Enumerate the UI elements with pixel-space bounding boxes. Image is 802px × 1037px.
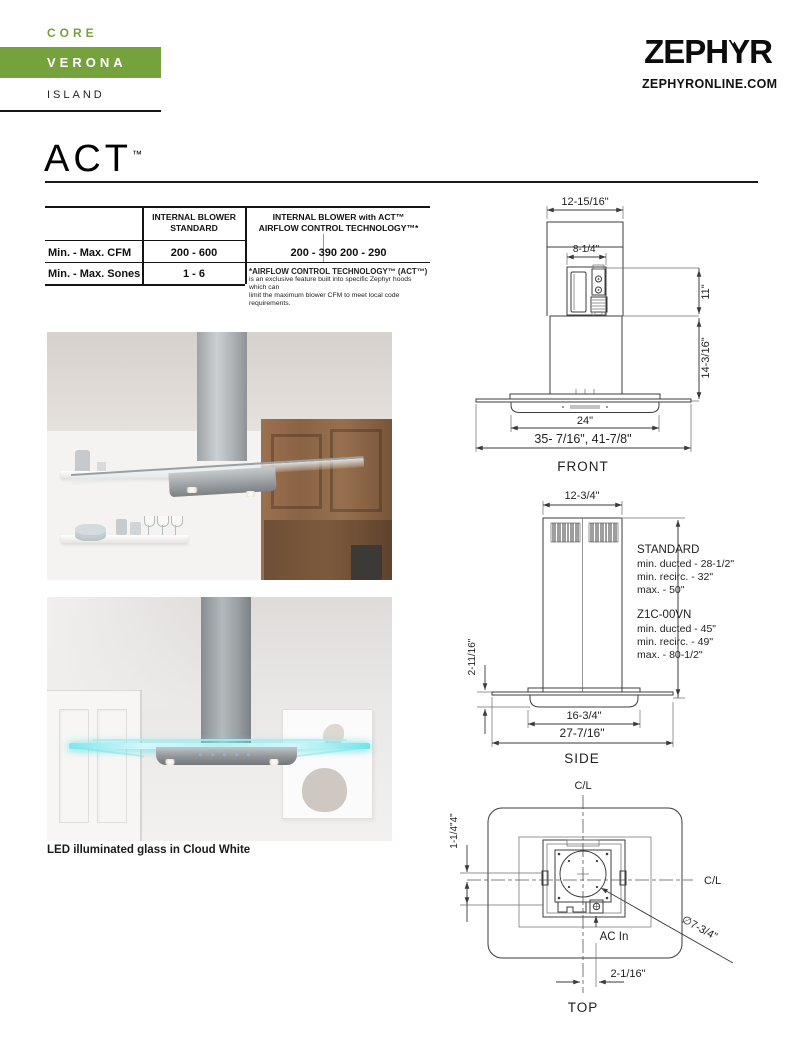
shelf-canister bbox=[75, 450, 91, 471]
spec-sheet-page: CORE VERONA ISLAND ZEPHYR ZEPHYRONLINE.C… bbox=[0, 0, 802, 1037]
artwork-shape bbox=[302, 768, 347, 812]
spec-table: INTERNAL BLOWER STANDARD INTERNAL BLOWER… bbox=[45, 206, 430, 300]
alt-title: Z1C-00VN bbox=[637, 609, 691, 621]
alt-max: max. - 80-1/2" bbox=[637, 649, 703, 661]
product-photo-led bbox=[47, 597, 392, 841]
plate-stack bbox=[75, 524, 106, 535]
hood-chimney bbox=[197, 332, 247, 461]
table-bottom-border bbox=[45, 284, 245, 286]
table-row-rule bbox=[45, 262, 430, 263]
series-label: CORE bbox=[47, 26, 98, 40]
table-top-border bbox=[45, 206, 430, 208]
standard-title: STANDARD bbox=[637, 544, 699, 556]
mounting-assembly-top bbox=[542, 840, 626, 917]
side-dim-overall-depth: 27-7/16" bbox=[560, 726, 605, 740]
row-cfm-label: Min. - Max. CFM bbox=[48, 247, 131, 259]
front-dim-lower-height: 14-3/16" bbox=[700, 337, 712, 378]
vent-louvers bbox=[551, 523, 618, 542]
top-centerline-label-h: C/L bbox=[704, 875, 721, 887]
wall-shelf bbox=[61, 535, 189, 542]
top-ac-in-label: AC In bbox=[600, 931, 629, 943]
product-type-label: ISLAND bbox=[47, 89, 105, 101]
hood-chimney bbox=[201, 597, 251, 745]
drawing-top-view: C/L C/L AC In bbox=[440, 775, 802, 1037]
top-dim-ac-offset: 2-1/16" bbox=[610, 968, 645, 980]
mounting-height-standard: STANDARD min. ducted - 28-1/2" min. reci… bbox=[637, 544, 734, 596]
zephyr-logo: ZEPHYR bbox=[642, 34, 774, 70]
standard-recirc: min. recirc. - 32" bbox=[637, 571, 713, 583]
top-view-label: TOP bbox=[568, 1000, 599, 1015]
hood-light bbox=[164, 759, 176, 765]
glass-back-edge bbox=[92, 739, 347, 741]
wine-glass bbox=[171, 516, 183, 527]
appliance bbox=[351, 545, 382, 580]
glass-stem bbox=[148, 525, 149, 535]
shelf-cup bbox=[97, 462, 106, 471]
junction-bracket bbox=[558, 902, 586, 912]
glass-outline-top bbox=[488, 808, 682, 958]
brand-website: ZEPHYRONLINE.COM bbox=[642, 77, 774, 91]
col-header-standard: INTERNAL BLOWER STANDARD bbox=[143, 212, 245, 234]
header-underline bbox=[0, 110, 161, 112]
page-title: ACT™ bbox=[44, 138, 146, 181]
glass-stem bbox=[162, 525, 163, 535]
internal-blower-detail bbox=[567, 265, 607, 315]
row-cfm-standard: 200 - 600 bbox=[143, 247, 245, 259]
drawing-side-view: STANDARD min. ducted - 28-1/2" min. reci… bbox=[445, 485, 800, 777]
side-dim-body-depth: 16-3/4" bbox=[566, 710, 601, 722]
cabinet-door bbox=[330, 429, 383, 512]
top-dim-duct-diameter: ∅7-3/4" bbox=[680, 914, 720, 943]
front-dim-chimney-width: 12-15/16" bbox=[561, 196, 608, 208]
standard-ducted: min. ducted - 28-1/2" bbox=[637, 558, 734, 570]
door-panel bbox=[59, 709, 89, 823]
table-footnote: *AIRFLOW CONTROL TECHNOLOGY™ (ACT™) is a… bbox=[249, 267, 430, 308]
top-centerline-label-v: C/L bbox=[574, 780, 591, 792]
glass-canopy-front bbox=[476, 389, 691, 413]
glass-stem bbox=[175, 525, 176, 535]
wine-glass bbox=[157, 516, 169, 527]
front-dim-blower-width: 8-1/4" bbox=[573, 244, 600, 255]
door-panel bbox=[97, 709, 127, 823]
model-banner: VERONA bbox=[0, 47, 161, 78]
front-dim-body-width: 24" bbox=[577, 415, 593, 427]
canister bbox=[116, 519, 127, 535]
front-dim-overall-width: 35- 7/16", 41-7/8" bbox=[534, 432, 631, 446]
row-sones-standard: 1 - 6 bbox=[143, 268, 245, 280]
trademark: ™ bbox=[132, 149, 146, 160]
front-dim-upper-height: 11" bbox=[700, 284, 712, 299]
row-cfm-act: 200 - 390 200 - 290 bbox=[247, 247, 430, 259]
product-photo-kitchen bbox=[47, 332, 392, 580]
front-view-label: FRONT bbox=[557, 459, 609, 474]
canister bbox=[130, 522, 141, 536]
hood-upper-body bbox=[550, 316, 622, 394]
title-rule bbox=[45, 181, 758, 183]
side-dim-glass-height: 2-11/16" bbox=[467, 638, 478, 675]
standard-max: max. - 50" bbox=[637, 584, 685, 596]
side-dim-chimney-depth: 12-3/4" bbox=[564, 490, 599, 502]
control-panel bbox=[199, 753, 251, 756]
drawing-front-view: 12-15/16" 8-1/4" 11" 14-3/16" 24" 35- 7/… bbox=[445, 195, 800, 480]
col-header-act: INTERNAL BLOWER with ACT™ AIRFLOW CONTRO… bbox=[247, 212, 430, 234]
alt-recirc: min. recirc. - 49" bbox=[637, 636, 713, 648]
logo-notch bbox=[728, 35, 738, 44]
hood-light bbox=[185, 487, 199, 493]
mounting-height-z1c00vn: Z1C-00VN min. ducted - 45" min. recirc. … bbox=[637, 609, 716, 661]
table-header-rule bbox=[45, 240, 245, 241]
alt-ducted: min. ducted - 45" bbox=[637, 623, 716, 635]
model-name: VERONA bbox=[47, 55, 127, 70]
row-sones-label: Min. - Max. Sones bbox=[48, 268, 140, 280]
photo-caption: LED illuminated glass in Cloud White bbox=[47, 844, 250, 856]
brand-block: ZEPHYR ZEPHYRONLINE.COM bbox=[642, 34, 774, 91]
wine-glass bbox=[144, 516, 156, 527]
hood-light bbox=[268, 759, 280, 765]
hood-light bbox=[244, 491, 258, 497]
duct-leader-line bbox=[601, 888, 733, 963]
top-dim-left-offsets: 1-1/4"4" bbox=[449, 813, 460, 849]
side-view-label: SIDE bbox=[564, 751, 600, 766]
